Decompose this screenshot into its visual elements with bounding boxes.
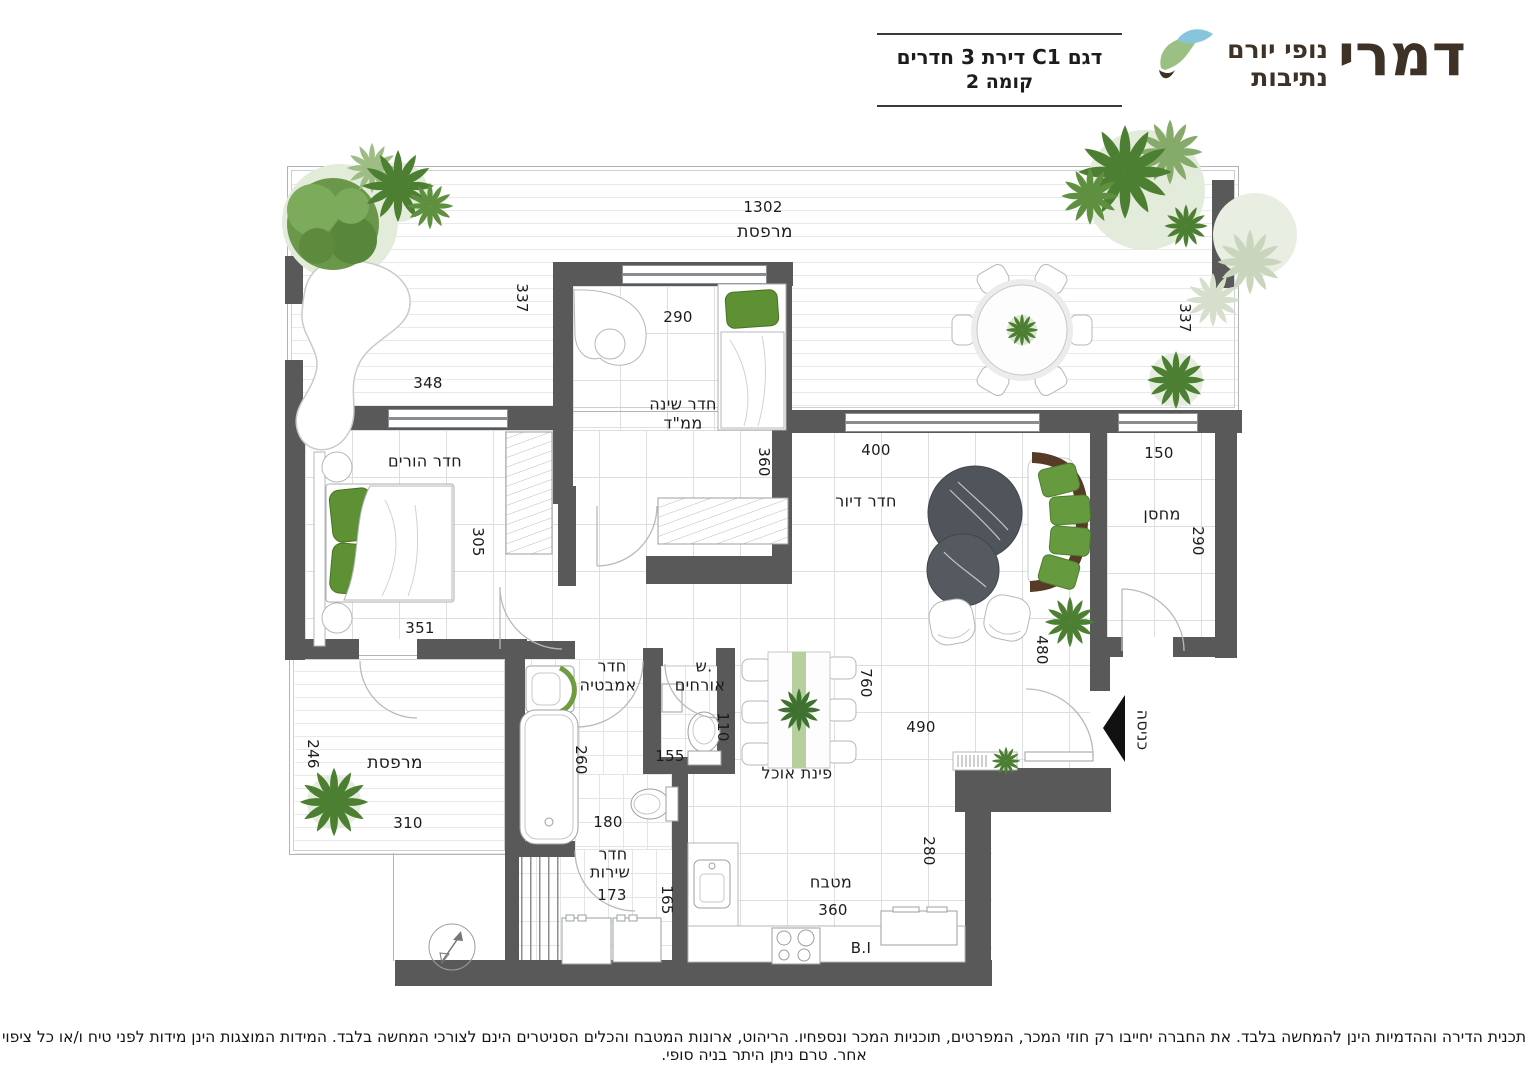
dim-storage-w: 150 [1144,444,1174,462]
dim-living-h: 480 [1033,635,1051,665]
hall-toilet [631,787,678,821]
entrance-door-leaf [1025,752,1093,761]
dim-mamad-h: 360 [755,447,773,477]
dim-hall-w: 180 [593,813,623,831]
armchair [981,592,1033,644]
room-label-master: חדר הורים [388,452,462,471]
dim-master-w: 351 [405,619,435,637]
room-label-storage: מחסן [1143,505,1180,524]
master-wardrobe [506,432,552,554]
room-label-mamad-1: חדר שינה [649,395,716,414]
dim-bath-h: 260 [572,745,590,775]
mamad-bed [718,284,786,430]
room-label-service-1: חדר [598,845,627,864]
plant-icon [300,768,368,836]
garden-top-left [282,143,453,450]
dim-kitchen-w: 360 [818,901,848,919]
fern-icon [1147,351,1205,409]
built-in-label: B.I [851,939,871,957]
room-label-kitchen: מטבח [810,873,852,892]
dim-service-w: 173 [597,886,627,904]
dim-balcony-top-left-h: 337 [513,283,531,313]
dim-kitchen-h: 280 [920,836,938,866]
room-label-mamad-2: ממ"ד [663,414,702,433]
floorplan-page: נופי יורם נתיבות דמרי דגם C1 דירת 3 חדרי… [0,0,1528,1080]
dim-master-h: 305 [469,527,487,557]
logo-bird-icon [1155,28,1217,98]
dim-dining-h: 760 [857,668,875,698]
dim-balcony-bottom-h: 246 [304,739,322,769]
master-bed [314,452,454,646]
entrance-arrow-icon [1103,695,1125,762]
room-label-dining: פינת אוכל [762,764,833,783]
plant-icon [1045,597,1095,647]
plan-title: דגם C1 דירת 3 חדרים [877,45,1122,69]
dim-storage-h: 290 [1189,526,1207,556]
tree-icon [287,178,379,270]
mamad-wardrobe [658,498,788,544]
room-label-living: חדר דיור [835,492,896,511]
dim-living-w: 400 [861,441,891,459]
dining-table [742,652,856,768]
bathroom-sink [526,666,574,712]
room-label-bath-2: אמבטיה [579,676,636,695]
dim-wc-w: 155 [655,747,685,765]
plan-title-box: דגם C1 דירת 3 חדרים קומה 2 [877,33,1122,107]
bathtub [520,710,578,844]
garden-path [296,261,410,450]
room-label-wc-2: אורחים [675,676,726,695]
plan-floor: קומה 2 [877,71,1122,93]
company-logo: נופי יורם נתיבות דמרי [1155,28,1466,98]
palm-icon [1186,273,1240,327]
dim-mamad-w: 290 [663,308,693,326]
room-label-wc-1: ש. [695,657,712,676]
kitchen-island [881,911,957,945]
room-label-balcony-top: מרפסת [737,222,792,242]
entrance-shelf [953,747,1020,776]
entrance-label: כניסה [1134,710,1153,751]
plant-icon [992,747,1021,776]
dim-dining-w: 490 [906,718,936,736]
disclaimer-text: תכנית הדירה וההדמיות הינן להמחשה בלבד. א… [0,1028,1528,1064]
dim-balcony-top-left-w: 348 [413,374,443,392]
washing-machines [562,915,661,964]
balcony-round-table [952,262,1092,398]
coffee-tables [927,466,1022,606]
dim-service-h: 165 [658,885,676,915]
garden-top-right [1061,120,1297,409]
compass-icon [429,924,475,970]
logo-brand: דמרי [1338,28,1466,83]
dim-balcony-top-w: 1302 [743,198,782,216]
dim-balcony-top-right-h: 337 [1176,303,1194,333]
kitchen-sink [694,860,730,908]
room-label-balcony-bottom: מרפסת [367,753,422,773]
logo-sub-line2: נתיבות [1251,64,1328,92]
living-sofa [1028,452,1091,592]
dim-balcony-bottom-w: 310 [393,814,423,832]
logo-sub-line1: נופי יורם [1227,36,1328,64]
furniture-layer [0,0,1528,1080]
room-label-service-2: שירות [590,863,630,882]
dim-wc-h: 110 [714,712,732,742]
mamad-desk [574,290,646,365]
room-label-bath-1: חדר [597,657,626,676]
